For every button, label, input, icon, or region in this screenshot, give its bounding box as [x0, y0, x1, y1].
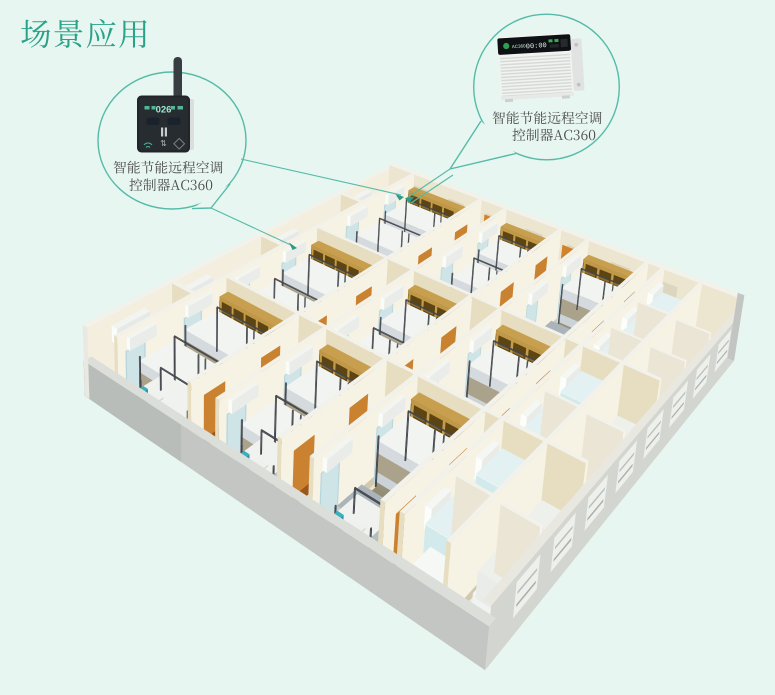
svg-text:026: 026 — [156, 105, 172, 116]
svg-text:⇅: ⇅ — [160, 139, 167, 148]
svg-text:AC360: AC360 — [512, 43, 527, 49]
svg-text:00:00: 00:00 — [526, 42, 547, 51]
